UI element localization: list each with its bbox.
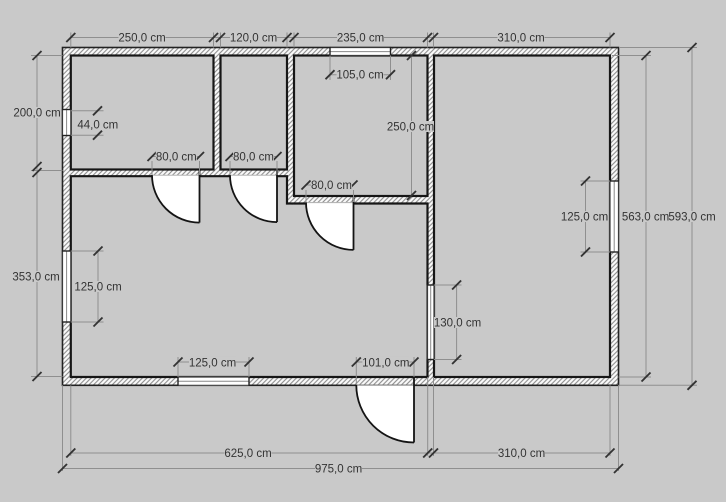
svg-text:125,0 cm: 125,0 cm: [561, 212, 608, 224]
svg-text:80,0 cm: 80,0 cm: [156, 152, 197, 164]
svg-text:80,0 cm: 80,0 cm: [311, 180, 352, 192]
svg-text:44,0 cm: 44,0 cm: [77, 120, 118, 132]
svg-text:235,0 cm: 235,0 cm: [337, 33, 384, 45]
svg-text:975,0 cm: 975,0 cm: [315, 464, 362, 476]
svg-text:105,0 cm: 105,0 cm: [336, 70, 383, 82]
svg-text:250,0 cm: 250,0 cm: [387, 122, 434, 134]
svg-text:120,0 cm: 120,0 cm: [230, 33, 277, 45]
svg-text:101,0 cm: 101,0 cm: [362, 357, 409, 369]
svg-text:130,0 cm: 130,0 cm: [434, 318, 481, 330]
svg-text:250,0 cm: 250,0 cm: [118, 33, 165, 45]
svg-text:125,0 cm: 125,0 cm: [74, 282, 121, 294]
svg-text:310,0 cm: 310,0 cm: [498, 448, 545, 460]
svg-text:310,0 cm: 310,0 cm: [497, 33, 544, 45]
svg-text:353,0 cm: 353,0 cm: [12, 272, 59, 284]
svg-text:200,0 cm: 200,0 cm: [13, 108, 60, 120]
svg-text:593,0 cm: 593,0 cm: [668, 212, 715, 224]
svg-text:125,0 cm: 125,0 cm: [189, 357, 236, 369]
svg-text:563,0 cm: 563,0 cm: [622, 212, 669, 224]
svg-text:625,0 cm: 625,0 cm: [224, 448, 271, 460]
svg-text:80,0 cm: 80,0 cm: [233, 152, 274, 164]
